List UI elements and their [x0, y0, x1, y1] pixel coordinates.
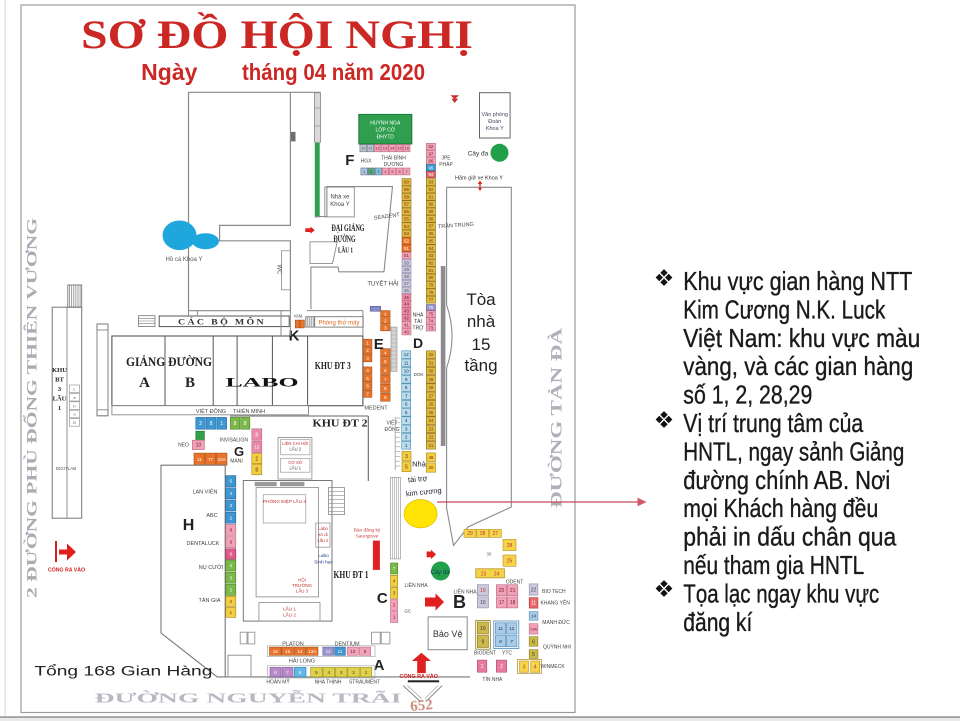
svg-text:tháng 04 năm 2020: tháng 04 năm 2020 — [242, 59, 425, 85]
svg-text:Sinh học: Sinh học — [314, 560, 333, 566]
svg-text:28: 28 — [507, 543, 513, 549]
svg-text:NHÀ: NHÀ — [413, 312, 424, 319]
svg-text:5: 5 — [315, 670, 318, 676]
svg-text:WINMECK: WINMECK — [541, 664, 566, 670]
svg-text:652: 652 — [410, 697, 434, 715]
svg-text:Ngày: Ngày — [141, 59, 197, 85]
svg-text:LẦU 3: LẦU 3 — [296, 589, 309, 594]
svg-text:13: 13 — [383, 146, 388, 151]
svg-text:11: 11 — [531, 601, 536, 607]
svg-text:Việt Nam: khu vực màu: Việt Nam: khu vực màu — [683, 323, 920, 353]
svg-text:24: 24 — [494, 572, 500, 578]
svg-text:77: 77 — [208, 457, 214, 462]
svg-text:54: 54 — [404, 224, 409, 229]
svg-text:82: 82 — [428, 260, 433, 265]
svg-text:ABC: ABC — [206, 513, 217, 519]
svg-text:24: 24 — [428, 418, 433, 423]
svg-text:16: 16 — [404, 146, 409, 151]
svg-text:DENTALUCK: DENTALUCK — [187, 541, 220, 547]
svg-text:3: 3 — [405, 454, 408, 460]
svg-text:58: 58 — [404, 194, 409, 199]
svg-text:BT: BT — [55, 377, 64, 384]
svg-text:LẦU: LẦU — [53, 395, 67, 403]
svg-text:Khoa Y: Khoa Y — [330, 202, 350, 208]
svg-text:17: 17 — [499, 600, 505, 606]
svg-text:Labo: Labo — [318, 526, 328, 531]
svg-text:53: 53 — [404, 231, 409, 236]
svg-text:2: 2 — [199, 421, 202, 427]
svg-text:12: 12 — [254, 445, 260, 450]
svg-text:H: H — [183, 517, 195, 534]
svg-text:B: B — [453, 592, 466, 612]
svg-text:mọi Khách hàng đều: mọi Khách hàng đều — [683, 493, 878, 523]
svg-text:74: 74 — [428, 318, 433, 323]
svg-text:WC: WC — [276, 265, 282, 276]
svg-text:TRỢ: TRỢ — [413, 326, 425, 332]
svg-text:60: 60 — [404, 180, 409, 185]
svg-text:Nhà xe: Nhà xe — [330, 195, 350, 201]
svg-text:THIÊN MINH: THIÊN MINH — [233, 407, 265, 415]
svg-text:42: 42 — [404, 315, 409, 320]
svg-text:NHA THỊNH: NHA THỊNH — [315, 680, 342, 686]
svg-text:INVISALIGN: INVISALIGN — [220, 438, 248, 444]
svg-text:40: 40 — [404, 329, 409, 334]
svg-text:14: 14 — [531, 614, 537, 619]
svg-text:2: 2 — [352, 670, 355, 676]
svg-text:86: 86 — [428, 231, 433, 236]
svg-text:43: 43 — [404, 309, 409, 314]
svg-text:phải in dấu chân qua: phải in dấu chân qua — [683, 522, 896, 552]
svg-text:15: 15 — [285, 649, 291, 654]
svg-text:29: 29 — [467, 531, 473, 537]
svg-text:92: 92 — [428, 187, 433, 192]
svg-text:12: 12 — [509, 626, 515, 632]
svg-text:YTC: YTC — [502, 651, 512, 657]
svg-text:nhà: nhà — [467, 312, 496, 331]
svg-text:Hồ cá Khoa Y: Hồ cá Khoa Y — [166, 257, 203, 263]
svg-text:94: 94 — [428, 172, 433, 177]
svg-text:LẦU 2: LẦU 2 — [283, 612, 296, 618]
svg-text:8: 8 — [244, 421, 247, 427]
svg-text:PHÒNG ĐIỆP LẦU 4: PHÒNG ĐIỆP LẦU 4 — [263, 497, 306, 504]
svg-text:78: 78 — [428, 290, 433, 295]
svg-text:E: E — [374, 336, 384, 353]
svg-text:LẦU 2: LẦU 2 — [289, 447, 301, 452]
svg-text:7: 7 — [286, 670, 289, 676]
svg-text:C: C — [377, 590, 388, 607]
svg-text:20: 20 — [428, 465, 434, 470]
svg-text:44: 44 — [404, 302, 409, 307]
svg-text:Labo: Labo — [318, 553, 329, 559]
svg-text:8: 8 — [234, 421, 237, 427]
svg-text:29: 29 — [428, 377, 433, 382]
svg-text:25: 25 — [507, 558, 513, 564]
svg-text:55: 55 — [404, 216, 409, 221]
svg-text:23: 23 — [428, 426, 433, 431]
svg-text:30: 30 — [428, 369, 433, 374]
svg-text:TÀI: TÀI — [414, 318, 422, 325]
svg-text:36: 36 — [486, 552, 492, 557]
svg-text:Hầm giữ xe Khoa Y: Hầm giữ xe Khoa Y — [455, 176, 503, 182]
svg-text:5: 5 — [532, 652, 535, 658]
svg-text:Vị trí trung tâm của: Vị trí trung tâm của — [683, 408, 863, 438]
svg-text:6: 6 — [532, 639, 535, 645]
svg-text:10: 10 — [196, 443, 202, 449]
svg-text:CỔNG RA VÀO: CỔNG RA VÀO — [48, 567, 85, 574]
svg-text:22: 22 — [428, 435, 433, 440]
svg-text:21: 21 — [510, 588, 516, 594]
svg-text:12: 12 — [326, 649, 332, 654]
svg-text:15: 15 — [397, 146, 402, 151]
svg-text:8: 8 — [274, 670, 277, 676]
svg-text:1: 1 — [481, 664, 484, 670]
svg-text:45: 45 — [404, 295, 409, 300]
svg-text:KHU ĐT 2: KHU ĐT 2 — [313, 418, 369, 430]
svg-text:49: 49 — [404, 267, 409, 272]
svg-text:16: 16 — [273, 649, 279, 654]
svg-text:KIM: KIM — [294, 313, 302, 318]
svg-text:TUYẾT HẢI: TUYẾT HẢI — [367, 281, 399, 288]
svg-text:ĐƯỜNG TẢN ĐÀ: ĐƯỜNG TẢN ĐÀ — [549, 327, 566, 508]
svg-text:1: 1 — [365, 670, 368, 676]
svg-text:Tổng 168 Gian Hàng: Tổng 168 Gian Hàng — [34, 664, 212, 679]
svg-text:83: 83 — [428, 253, 433, 258]
svg-text:2 ĐƯỜNG PHÙ ĐỔNG THIÊN VƯƠNG: 2 ĐƯỜNG PHÙ ĐỔNG THIÊN VƯƠNG — [23, 218, 41, 598]
svg-text:D: D — [413, 335, 423, 351]
svg-text:đăng kí: đăng kí — [683, 607, 753, 637]
svg-text:90: 90 — [428, 202, 433, 207]
svg-text:Cây đa: Cây đa — [468, 151, 489, 158]
svg-text:48: 48 — [428, 455, 434, 460]
svg-text:77: 77 — [428, 297, 433, 302]
svg-text:59: 59 — [404, 187, 409, 192]
svg-text:số 1, 2, 28,29: số 1, 2, 28,29 — [683, 380, 812, 410]
svg-text:11: 11 — [404, 360, 409, 365]
svg-text:73: 73 — [428, 325, 433, 330]
svg-text:LẦU 1: LẦU 1 — [289, 466, 301, 471]
svg-text:HUỲNH NGA: HUỲNH NGA — [370, 120, 401, 127]
svg-text:93: 93 — [428, 180, 433, 185]
svg-text:KHU: KHU — [52, 367, 67, 374]
svg-text:79: 79 — [428, 283, 433, 288]
svg-text:Bàn đăng ký: Bàn đăng ký — [354, 528, 381, 534]
svg-text:51: 51 — [404, 246, 409, 251]
svg-text:97: 97 — [428, 151, 433, 156]
svg-text:10A: 10A — [218, 457, 227, 462]
svg-text:46: 46 — [404, 288, 409, 293]
svg-text:20: 20 — [499, 588, 505, 594]
svg-text:10: 10 — [404, 369, 409, 374]
svg-text:LẦU 1: LẦU 1 — [338, 247, 353, 255]
svg-text:LIÊN CHI HỘI: LIÊN CHI HỘI — [282, 441, 308, 446]
svg-text:1: 1 — [58, 405, 61, 412]
svg-text:8: 8 — [499, 639, 502, 645]
svg-text:DIGITLAB: DIGITLAB — [56, 466, 77, 471]
svg-text:Tòa: Tòa — [466, 290, 496, 309]
svg-text:Phòng thử máy: Phòng thử máy — [318, 319, 359, 326]
svg-text:Nhà: Nhà — [412, 460, 427, 469]
svg-text:11: 11 — [498, 626, 503, 632]
svg-text:CÁC BỘ MÔN: CÁC BỘ MÔN — [178, 316, 266, 326]
svg-text:VIỆT ĐÔNG: VIỆT ĐÔNG — [196, 407, 226, 415]
svg-text:B: B — [185, 375, 195, 391]
svg-text:13: 13 — [350, 649, 356, 654]
svg-text:15: 15 — [472, 335, 491, 354]
svg-text:1: 1 — [220, 421, 223, 427]
svg-text:6: 6 — [299, 670, 302, 676]
svg-text:96: 96 — [428, 158, 433, 163]
svg-text:28: 28 — [480, 531, 486, 537]
svg-text:18: 18 — [510, 600, 516, 606]
svg-text:89: 89 — [428, 209, 433, 214]
svg-text:BIO TECH: BIO TECH — [542, 589, 566, 595]
svg-text:2: 2 — [500, 664, 503, 670]
svg-text:13A: 13A — [530, 626, 537, 631]
svg-text:CƠ SỞ: CƠ SỞ — [288, 460, 303, 465]
svg-text:3: 3 — [523, 664, 526, 670]
svg-text:85: 85 — [428, 238, 433, 243]
svg-text:LIÊN NHA: LIÊN NHA — [404, 581, 428, 589]
svg-text:LẦU 1: LẦU 1 — [283, 606, 296, 612]
svg-text:Tọa lạc ngay khu vực: Tọa lạc ngay khu vực — [683, 578, 879, 608]
svg-text:41: 41 — [404, 322, 409, 327]
svg-text:Kim Cương N.K. Luck: Kim Cương N.K. Luck — [683, 294, 886, 324]
svg-text:HNTL, ngay sảnh Giảng: HNTL, ngay sảnh Giảng — [683, 436, 904, 466]
svg-text:HOÀN MỸ: HOÀN MỸ — [266, 679, 290, 686]
svg-text:80: 80 — [428, 275, 433, 280]
svg-text:51: 51 — [404, 253, 409, 258]
svg-text:NEO: NEO — [178, 443, 189, 449]
svg-text:ĐÔNG: ĐÔNG — [385, 426, 400, 433]
svg-text:F: F — [345, 152, 354, 169]
svg-text:PHÁP: PHÁP — [439, 161, 453, 168]
svg-text:10: 10 — [480, 626, 486, 632]
svg-text:5: 5 — [405, 465, 408, 471]
svg-text:48: 48 — [404, 274, 409, 279]
svg-text:CỔNG RA VÀO: CỔNG RA VÀO — [399, 673, 437, 680]
svg-text:MANI: MANI — [230, 459, 243, 465]
svg-text:Bảo Vệ: Bảo Vệ — [433, 629, 463, 639]
svg-text:DENTIUM: DENTIUM — [334, 642, 359, 648]
svg-text:16: 16 — [480, 600, 486, 606]
svg-text:4: 4 — [327, 670, 330, 676]
svg-text:14: 14 — [297, 649, 303, 654]
svg-text:81: 81 — [428, 268, 433, 273]
svg-text:LAN VIÊN: LAN VIÊN — [192, 488, 217, 496]
svg-text:HỘI: HỘI — [298, 578, 306, 583]
svg-text:tầng: tầng — [464, 356, 497, 375]
svg-text:Đoàn: Đoàn — [488, 119, 501, 125]
svg-text:SƠ ĐỒ HỘI NGHỊ: SƠ ĐỒ HỘI NGHỊ — [81, 11, 473, 57]
svg-text:MEDENT: MEDENT — [364, 406, 388, 412]
svg-text:Khoa Y: Khoa Y — [486, 126, 504, 132]
svg-text:nếu tham gia HNTL: nếu tham gia HNTL — [683, 550, 864, 580]
svg-text:50: 50 — [404, 260, 409, 265]
svg-text:8: 8 — [364, 649, 367, 654]
svg-text:3: 3 — [340, 670, 343, 676]
svg-text:KHU ĐT 3: KHU ĐT 3 — [315, 361, 351, 372]
svg-text:10: 10 — [361, 146, 366, 151]
svg-text:MANH ĐỨC: MANH ĐỨC — [542, 619, 570, 626]
svg-text:TÂN GIA: TÂN GIA — [198, 597, 220, 604]
svg-text:Khu vực gian hàng NTT: Khu vực gian hàng NTT — [683, 266, 912, 296]
svg-text:84: 84 — [428, 246, 433, 251]
svg-text:ĐHYTD: ĐHYTD — [377, 135, 395, 141]
svg-text:23: 23 — [481, 572, 487, 578]
svg-text:DOK: DOK — [414, 372, 424, 377]
svg-text:26: 26 — [428, 402, 433, 407]
svg-text:12: 12 — [404, 352, 409, 357]
svg-text:25: 25 — [428, 410, 433, 415]
svg-text:KHANG YẾN: KHANG YẾN — [541, 600, 571, 607]
svg-text:ĐƯỜNG NGUYỄN TRÃI: ĐƯỜNG NGUYỄN TRÃI — [95, 689, 402, 707]
svg-text:22: 22 — [531, 587, 537, 593]
svg-text:LỚP CỜ: LỚP CỜ — [375, 127, 395, 134]
svg-text:HẢI LONG: HẢI LONG — [289, 658, 315, 665]
svg-text:HGX: HGX — [361, 159, 373, 165]
svg-text:31: 31 — [428, 360, 433, 365]
svg-text:95: 95 — [428, 165, 433, 170]
svg-text:87: 87 — [428, 224, 433, 229]
svg-text:ĐƯỜNG: ĐƯỜNG — [334, 233, 356, 245]
svg-text:A: A — [139, 375, 150, 391]
svg-text:13A: 13A — [308, 649, 317, 654]
svg-text:G: G — [234, 444, 244, 459]
svg-text:52: 52 — [404, 238, 409, 243]
svg-text:11: 11 — [338, 649, 343, 654]
svg-text:xn di: xn di — [318, 532, 327, 537]
svg-text:9: 9 — [482, 639, 485, 645]
svg-text:56: 56 — [404, 209, 409, 214]
svg-text:27: 27 — [493, 531, 499, 537]
svg-text:75: 75 — [428, 312, 433, 317]
svg-text:14: 14 — [390, 146, 395, 151]
svg-text:TÍN NHA: TÍN NHA — [482, 676, 503, 683]
svg-text:7: 7 — [510, 639, 513, 645]
svg-text:GIẢNG ĐƯỜNG: GIẢNG ĐƯỜNG — [126, 354, 212, 369]
svg-text:QUỲNH NHI: QUỲNH NHI — [543, 644, 571, 651]
svg-text:TRƯỜNG: TRƯỜNG — [292, 583, 313, 588]
svg-text:32: 32 — [428, 352, 433, 357]
svg-text:STRAUMENT: STRAUMENT — [349, 680, 380, 686]
svg-text:D: D — [73, 420, 76, 425]
svg-text:8: 8 — [210, 421, 213, 427]
svg-text:8: 8 — [255, 432, 258, 438]
svg-text:vàng, và các gian hàng: vàng, và các gian hàng — [683, 351, 913, 381]
svg-text:Lầu 2: Lầu 2 — [318, 538, 330, 543]
svg-text:76: 76 — [428, 305, 433, 310]
svg-text:19: 19 — [480, 588, 486, 594]
svg-text:GC: GC — [404, 609, 412, 614]
svg-text:8: 8 — [255, 467, 258, 473]
svg-text:11: 11 — [197, 457, 202, 462]
svg-text:ĐẠI GIẢNG: ĐẠI GIẢNG — [332, 222, 365, 234]
svg-text:DƯƠNG: DƯƠNG — [384, 162, 404, 168]
svg-text:Văn phòng: Văn phòng — [481, 112, 508, 118]
svg-text:21: 21 — [428, 443, 433, 448]
svg-text:NỤ CƯỜI: NỤ CƯỜI — [199, 564, 224, 571]
svg-text:4: 4 — [534, 664, 537, 670]
svg-text:88: 88 — [428, 216, 433, 221]
svg-text:PLATON: PLATON — [282, 642, 304, 648]
svg-text:BIODENT: BIODENT — [474, 651, 496, 657]
svg-text:Cây da: Cây da — [430, 570, 450, 576]
svg-text:đường chính AB. Nơi: đường chính AB. Nơi — [683, 465, 890, 495]
svg-text:12: 12 — [375, 146, 380, 151]
svg-text:27: 27 — [428, 393, 433, 398]
svg-text:47: 47 — [404, 281, 409, 286]
svg-text:JPE: JPE — [441, 156, 451, 162]
svg-text:LABO: LABO — [226, 375, 299, 390]
svg-text:57: 57 — [404, 202, 409, 207]
svg-text:62: 62 — [428, 144, 433, 149]
svg-text:2: 2 — [255, 456, 258, 462]
svg-text:THÁI BÌNH: THÁI BÌNH — [381, 155, 406, 162]
svg-text:28: 28 — [428, 385, 433, 390]
svg-text:91: 91 — [428, 194, 433, 199]
svg-text:KHU ĐT 1: KHU ĐT 1 — [334, 570, 369, 581]
svg-text:Saungtove: Saungtove — [356, 534, 379, 540]
